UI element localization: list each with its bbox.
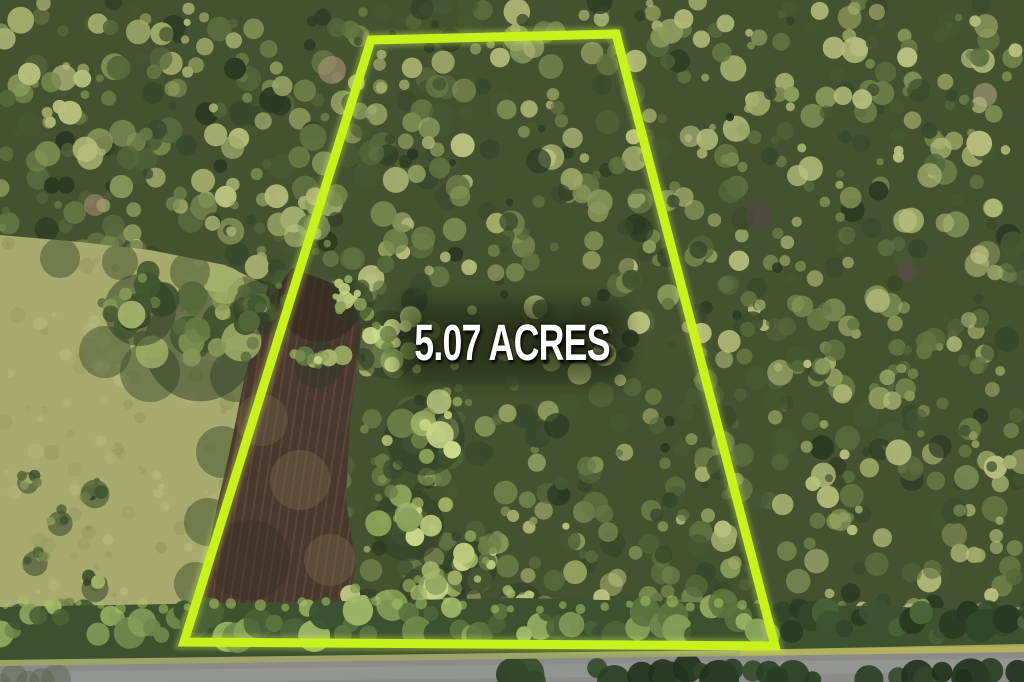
aerial-photo: 5.07 ACRES — [0, 0, 1024, 682]
acreage-label: 5.07 ACRES — [414, 312, 610, 371]
